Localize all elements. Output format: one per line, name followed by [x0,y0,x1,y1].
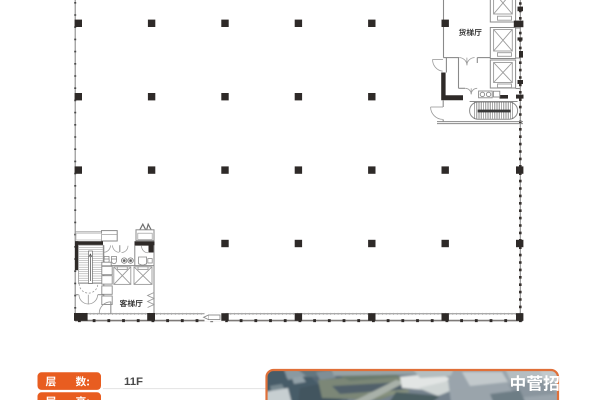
svg-text:11F: 11F [124,376,143,388]
